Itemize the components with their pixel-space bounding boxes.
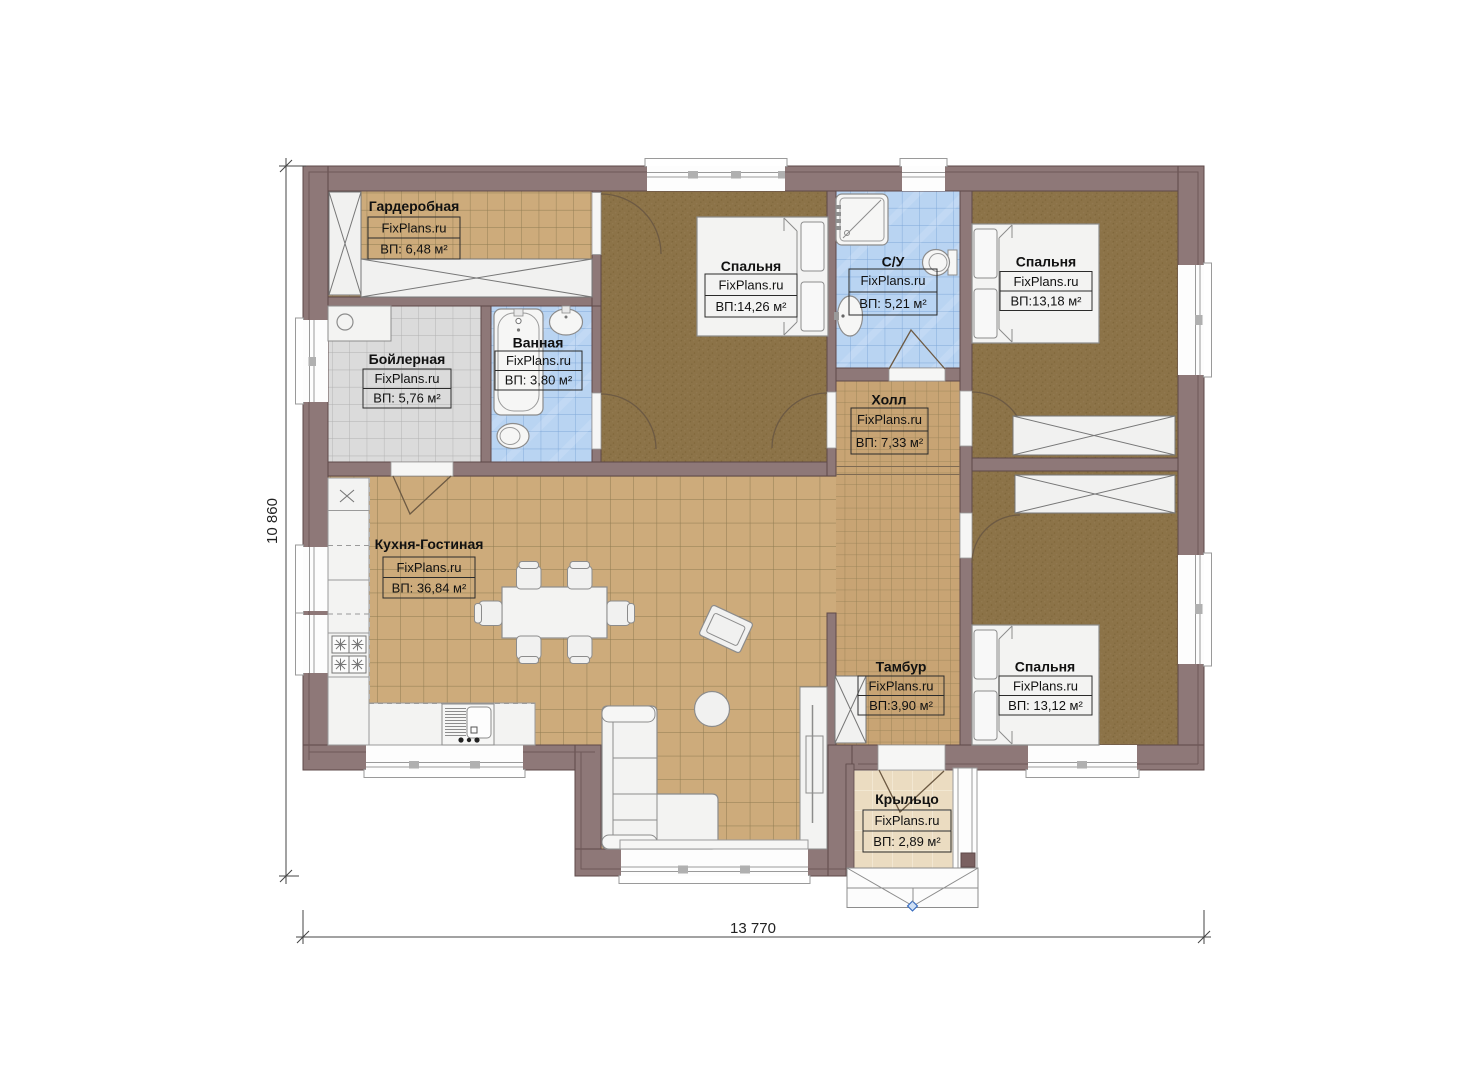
svg-text:ВП: 5,76 м²: ВП: 5,76 м² [373,391,441,406]
svg-text:Гардеробная: Гардеробная [369,198,460,214]
svg-text:FixPlans.ru: FixPlans.ru [1013,679,1078,694]
svg-text:FixPlans.ru: FixPlans.ru [718,278,783,293]
svg-text:FixPlans.ru: FixPlans.ru [857,412,922,427]
svg-text:FixPlans.ru: FixPlans.ru [381,221,446,236]
svg-text:FixPlans.ru: FixPlans.ru [396,560,461,575]
svg-text:ВП:13,18 м²: ВП:13,18 м² [1010,294,1082,309]
svg-text:FixPlans.ru: FixPlans.ru [374,371,439,386]
svg-text:ВП: 36,84 м²: ВП: 36,84 м² [392,581,467,596]
svg-text:FixPlans.ru: FixPlans.ru [506,353,571,368]
svg-text:ВП:14,26 м²: ВП:14,26 м² [715,299,787,314]
svg-text:13 770: 13 770 [730,920,776,937]
svg-text:10 860: 10 860 [264,498,281,544]
svg-text:FixPlans.ru: FixPlans.ru [1013,274,1078,289]
svg-text:Крыльцо: Крыльцо [875,791,939,807]
svg-text:Ванная: Ванная [513,335,564,351]
svg-text:Холл: Холл [871,392,906,408]
svg-text:Тамбур: Тамбур [876,659,927,675]
svg-text:ВП: 3,80 м²: ВП: 3,80 м² [505,373,573,388]
svg-text:Бойлерная: Бойлерная [369,351,446,367]
svg-text:Спальня: Спальня [1016,254,1076,270]
svg-text:Спальня: Спальня [1015,659,1075,675]
svg-text:FixPlans.ru: FixPlans.ru [874,813,939,828]
svg-text:FixPlans.ru: FixPlans.ru [868,679,933,694]
svg-text:С/У: С/У [882,254,905,270]
svg-text:Спальня: Спальня [721,258,781,274]
svg-text:ВП: 6,48 м²: ВП: 6,48 м² [380,242,448,257]
svg-text:ВП: 13,12 м²: ВП: 13,12 м² [1008,698,1083,713]
svg-text:FixPlans.ru: FixPlans.ru [860,273,925,288]
svg-text:ВП:3,90 м²: ВП:3,90 м² [869,698,933,713]
svg-text:Кухня-Гостиная: Кухня-Гостиная [375,536,484,552]
svg-text:ВП: 2,89 м²: ВП: 2,89 м² [873,834,941,849]
svg-text:ВП: 7,33 м²: ВП: 7,33 м² [856,435,924,450]
svg-text:ВП: 5,21 м²: ВП: 5,21 м² [859,296,927,311]
